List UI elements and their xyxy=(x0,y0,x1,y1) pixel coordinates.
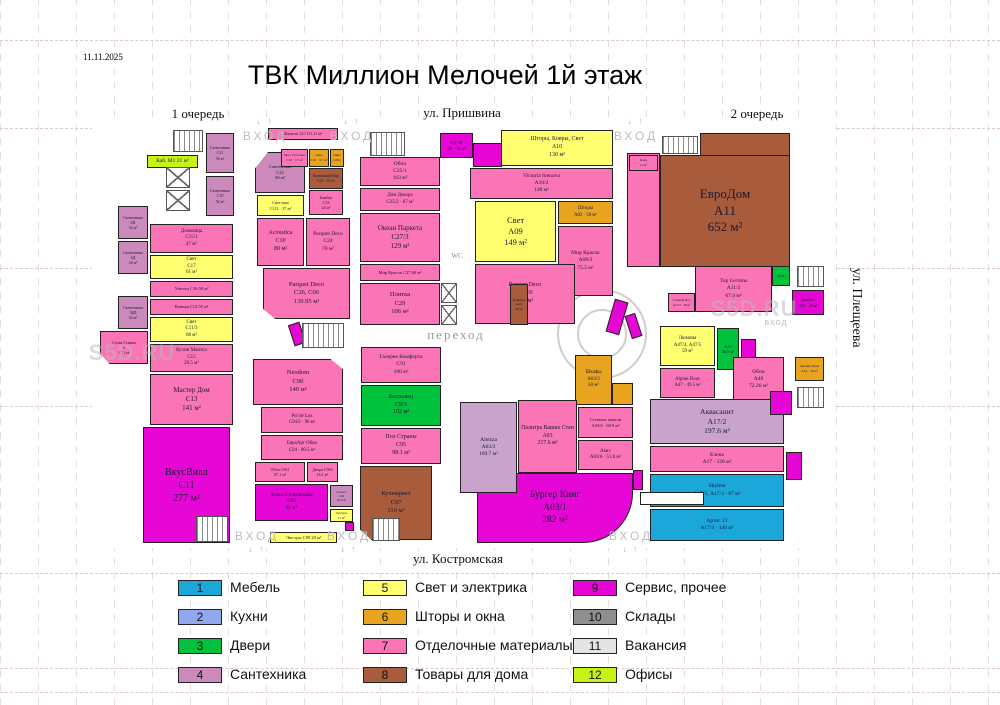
shop-block: Шторы, Ковры, СветА10130 м² xyxy=(501,130,613,166)
street: 1 очередь xyxy=(172,106,225,122)
stairs-icon xyxy=(370,132,405,156)
shop-block: ВолховецС9/3102 м² xyxy=(361,385,441,426)
shop-block: Алиса СтолешницыС9381 м² xyxy=(255,484,328,521)
shop-block xyxy=(633,470,643,490)
entrance: ВХОД xyxy=(614,129,658,143)
shop-block: Parquet DecoС26, С06139.95 м² xyxy=(263,268,350,319)
shop-block: ПлиткаС29106 м² xyxy=(360,283,440,325)
shop-label: С25/1 xyxy=(361,168,439,175)
shop-label: Мастер Дом xyxy=(151,386,232,395)
elevator-icon xyxy=(441,305,457,325)
shop-label: 72.26 м² xyxy=(734,383,783,390)
legend-swatch: 7 xyxy=(363,638,407,654)
shop-label: Skyline xyxy=(651,483,783,490)
shop-label: С11 xyxy=(144,479,229,492)
shop-block: ОкнаС1б · 8.5 м² xyxy=(309,149,329,167)
grid-line xyxy=(0,573,1000,574)
shop-label: 61 м² xyxy=(151,270,232,277)
shop-label: 15 м² xyxy=(331,516,352,520)
street: ул. Костромская xyxy=(413,551,503,567)
shop-label: Артис 21 xyxy=(651,518,783,525)
street: ул. Пришвина xyxy=(423,105,501,121)
shop-block: NeodomС9б140 м² xyxy=(253,359,343,405)
shop-block: Пол СтраныС9598.1 м² xyxy=(361,428,441,464)
shop-label: Плитка xyxy=(361,291,439,299)
shop-label: С95 xyxy=(362,442,440,450)
shop-label: Victoria Stenova xyxy=(471,173,612,180)
shop-label: Свет xyxy=(476,215,555,226)
shop-label: С91 xyxy=(362,361,440,368)
shop-label: Шторы, Ковры, Свет xyxy=(502,136,612,144)
shop-block: СветА09149 м² xyxy=(475,201,556,262)
shop-block: Alpine FloorА47 · 49.5 м² xyxy=(660,368,715,398)
shop-label: 59 м² xyxy=(661,349,714,356)
shop-label: А17/4 · 140 м² xyxy=(651,525,783,532)
shop-label: Neodom xyxy=(254,369,342,377)
stairs-icon xyxy=(302,323,344,348)
shop-block: Сантехника6Д34 м² xyxy=(118,241,148,274)
shop-label: А17/2 xyxy=(651,417,783,427)
legend-swatch: 2 xyxy=(178,609,222,625)
shop-label: А10/2 xyxy=(471,180,612,187)
arrows: ↓ ↑ xyxy=(256,116,273,126)
shop-label: С97 xyxy=(361,499,431,507)
shop-block: СантехникаС1956 м² xyxy=(206,176,234,216)
entrance: ВХОД xyxy=(609,529,653,543)
shop-label: 16.1 м² xyxy=(308,472,337,477)
shop-label: 26 м² xyxy=(511,307,527,312)
shop-label: А02 · 50 м² xyxy=(559,213,612,219)
shop-label: А03/6 · 51.6 м² xyxy=(579,455,632,462)
shop-label: А48 xyxy=(734,376,783,383)
shop-label: 98.1 м² xyxy=(362,450,440,458)
shop-label: С29 xyxy=(361,300,439,308)
shop-block: КаминыА4026 м² xyxy=(510,284,528,325)
shop-label: Мир Красок С27 60 м² xyxy=(361,270,439,276)
shop-label: А03 xyxy=(519,433,576,441)
shop-label: Волховец xyxy=(362,394,440,402)
shop-label: 130 м² xyxy=(502,152,612,160)
shop-block xyxy=(473,143,502,167)
shop-label: 106 м² xyxy=(361,308,439,316)
legend-label: Сантехника xyxy=(230,666,306,682)
entrance: ВХОД xyxy=(327,529,371,543)
legend-label: Сервис, прочее xyxy=(625,579,726,595)
shop-label: Acoustica xyxy=(258,230,303,238)
arrows: ↓ ↑ xyxy=(340,544,357,554)
shop-block: Мос. ПотолкиС16 · 17 м² xyxy=(281,149,308,167)
shop-block: Parquet DecoС2470 м² xyxy=(306,218,350,266)
shop-label: 30.5 м² xyxy=(718,349,738,354)
shop-block: СДЭКД9 · 12 м² xyxy=(440,133,473,158)
shop-label: 102 м² xyxy=(362,409,440,417)
legend-label: Вакансия xyxy=(625,637,686,653)
shop-label: 217.6 м² xyxy=(519,440,576,448)
shop-label: 56 м² xyxy=(207,156,233,161)
shop-label: 70 м² xyxy=(307,246,349,253)
entrance: ВХОД xyxy=(243,129,287,143)
shop-block: Стенные панелиА03/4 · 60.9 м² xyxy=(578,407,633,438)
shop-block: ОкнаС2б1 xyxy=(330,149,344,167)
shop-label: Обои xyxy=(734,369,783,376)
street: 2 очередь xyxy=(731,106,784,122)
shop-label: С1б · 8.5 м² xyxy=(310,158,328,163)
watermark: S5D.RU xyxy=(89,340,176,366)
shop-label: А03/1 xyxy=(478,502,632,514)
shop-label: ВкусВилл xyxy=(144,466,229,479)
shop-block xyxy=(786,452,802,480)
shop-label: 148 м² xyxy=(471,187,612,194)
shop-label: 47 м² xyxy=(151,242,232,249)
shop-label: 24 м² xyxy=(310,205,342,210)
stairs-icon xyxy=(196,516,228,542)
shop-block: СветС11/368 м² xyxy=(150,317,233,342)
shop-block: Стенной ПолА13/3 · 28 м² xyxy=(668,293,695,312)
shop-label: С94 · 80.5 м² xyxy=(262,448,342,454)
shop-label: 56 м² xyxy=(207,199,233,204)
shop-label: С13 xyxy=(151,395,232,404)
shop-label: Галерея Комфорта xyxy=(362,354,440,361)
elevator-icon xyxy=(441,283,457,303)
shop-label: 277 м² xyxy=(144,492,229,505)
shop-block xyxy=(700,133,790,156)
shop-label: 100 м² xyxy=(362,369,440,376)
shop-label: А17 · 126 м² xyxy=(651,459,783,466)
shop-block: ЕленаА17 · 126 м² xyxy=(650,446,784,472)
elevator-icon xyxy=(166,167,190,188)
shop-label: С10 xyxy=(258,238,303,246)
grid-line xyxy=(0,692,1000,693)
legend-swatch: 3 xyxy=(178,638,222,654)
shop-block: Галерея КомфортаС91100 м² xyxy=(361,347,441,383)
shop-block: Мир Красок С27 60 м² xyxy=(360,264,440,281)
shop-block: AcousticaС1080 м² xyxy=(257,218,304,266)
shop-block: Victoria StenovaА10/2148 м² xyxy=(470,168,613,199)
arrows: ↓ ↑ xyxy=(627,116,644,126)
shop-block: Сантехника3БД34 м² xyxy=(118,296,148,329)
shop-label: Д9 · 12 м² xyxy=(441,146,472,152)
shop-label: А09 xyxy=(476,226,555,237)
shop-label: С9б xyxy=(254,378,342,386)
shop-block: СантехникаС2156 м² xyxy=(206,133,234,173)
shop-block: ЛюминаА47/4, А47/559 м² xyxy=(660,326,715,366)
shop-label: С9/3 xyxy=(362,402,440,410)
shop-label: С27/3 xyxy=(361,233,439,242)
shop-label: С26, С06 xyxy=(264,289,349,297)
shop-block: Дизайн ОкнаА14 · 29 м² xyxy=(795,357,824,381)
shop-label: А12 · 28 м² xyxy=(793,303,823,308)
stairs-icon xyxy=(797,387,824,408)
shop-label: Parquet Deco xyxy=(264,281,349,289)
shop-block: СветланаС121 · 37 м² xyxy=(257,195,304,216)
shop-label: А11/3 xyxy=(696,285,771,292)
shop-label: 50 м² xyxy=(576,383,611,390)
legend-swatch: 6 xyxy=(363,609,407,625)
shop-label: С2б1 xyxy=(331,158,343,163)
shop-label: А14 · 29 м² xyxy=(796,369,823,374)
shop-label: А03/2 xyxy=(461,444,516,451)
shop-block: Люстры15 м² xyxy=(330,509,353,522)
shop-label: 87.1 м² xyxy=(256,472,304,477)
legend-swatch: 1 xyxy=(178,580,222,596)
shop-label: Кухмаркет xyxy=(361,490,431,498)
shop-block: Дом ДекораС25/2 · 67 м² xyxy=(360,188,440,211)
shop-block: Океан ПаркетаС27/3129 м² xyxy=(360,213,440,262)
stairs-icon xyxy=(662,136,698,154)
elevator-icon xyxy=(166,190,190,211)
legend-label: Мебель xyxy=(230,579,280,595)
legend-label: Свет и электрика xyxy=(415,579,527,595)
street-v: ул. Плещеева xyxy=(848,268,864,348)
stairs-icon xyxy=(372,518,400,541)
shop-label: А11 xyxy=(661,203,789,220)
shop-label: 34 м² xyxy=(119,260,147,265)
shop-label: Пол Страны xyxy=(362,434,440,442)
date: 11.11.2025 xyxy=(83,52,123,62)
shop-block: Палитра Ваших СтенА03217.6 м² xyxy=(518,400,577,473)
shop-label: 652 м² xyxy=(661,219,789,236)
shop-label: С24 xyxy=(307,238,349,245)
legend-swatch: 5 xyxy=(363,580,407,596)
shop-label: А10 xyxy=(502,144,612,152)
shop-block xyxy=(640,492,704,505)
shop-block: Сантех.С9225.6 м² xyxy=(330,485,353,507)
shop-label: 139.95 м² xyxy=(264,298,349,306)
shop-block: ЕвроАрт ОбоиС94 · 80.5 м² xyxy=(261,435,343,460)
grid-line xyxy=(0,40,1000,41)
shop-label: Ванная С14 55 м² xyxy=(151,304,232,310)
legend-label: Товары для дома xyxy=(415,666,528,682)
shop-label: 140 м² xyxy=(254,386,342,394)
page-title: ТВК Миллион Мелочей 1й этаж xyxy=(0,60,890,91)
shop-label: 110 м² xyxy=(361,507,431,515)
shop-label: С23 · 18 м² xyxy=(310,179,342,184)
shop-label: 141 м² xyxy=(151,404,232,413)
shop-block: ДомовицаС15/147 м² xyxy=(150,224,233,253)
arrows: ↓ ↑ xyxy=(248,544,265,554)
shop-block: Артис 21А17/4 · 140 м² xyxy=(650,509,784,541)
shop-block: Сантехника6П34 м² xyxy=(118,206,148,239)
shop-label: С121 · 37 м² xyxy=(258,206,303,211)
shop-block: ЕвроДомА11652 м² xyxy=(660,155,790,267)
shop-label: 68 м² xyxy=(151,333,232,340)
shop-label: Мир Красок xyxy=(559,250,612,257)
entrance: ВХОД xyxy=(330,129,374,143)
shop-label: 14 м² xyxy=(630,163,657,168)
shop-label: 169.7 м² xyxy=(461,451,516,458)
shop-label: Умелец С16 50 м² xyxy=(151,286,232,292)
shop-label: А47 · 49.5 м² xyxy=(661,383,714,389)
shop-label: Altezza xyxy=(461,437,516,444)
shop-label: 15 м² xyxy=(773,274,789,279)
shop-block: AlarcА03/6 · 51.6 м² xyxy=(578,440,633,470)
legend-swatch: 10 xyxy=(573,609,617,625)
shop-block: Pol de LuxС94/2 · 96 м² xyxy=(261,407,343,433)
legend-swatch: 12 xyxy=(573,667,617,683)
stairs-icon xyxy=(173,130,203,152)
floorplan-page: ТВК Миллион Мелочей 1й этаж 11.11.2025 С… xyxy=(0,0,1000,705)
shop-label: Каб. М1 21 м² xyxy=(148,158,197,165)
shop-block: Двери С9б316.1 м² xyxy=(307,462,338,482)
legend-label: Отделочные материалы xyxy=(415,637,573,653)
shop-label: Елена xyxy=(651,452,783,459)
shop-block xyxy=(612,383,633,405)
legend-label: Двери xyxy=(230,637,270,653)
legend-swatch: 4 xyxy=(178,667,222,683)
legend-label: Офисы xyxy=(625,666,672,682)
shop-label: 81 м² xyxy=(256,506,327,513)
shop-block: ОбоиС25/1103 м² xyxy=(360,157,440,186)
shop-label: 149 м² xyxy=(476,237,555,248)
shop-label: 34 м² xyxy=(119,315,147,320)
shop-block: Каминный МирС23 · 18 м² xyxy=(309,168,343,189)
wc: WC xyxy=(451,252,462,260)
shop-label: Аквасанит xyxy=(651,407,783,417)
shop-block: Ванная С14 55 м² xyxy=(150,299,233,315)
shop-label: 68 м² xyxy=(256,175,304,181)
legend-label: Кухни xyxy=(230,608,268,624)
stairs-icon xyxy=(797,266,824,287)
shop-label: 129 м² xyxy=(361,242,439,251)
shop-label: 34 м² xyxy=(119,225,147,230)
shop-block: ШторыА02 · 50 м² xyxy=(558,201,613,224)
shop-label: 103 м² xyxy=(361,175,439,182)
arrows: ↓ ↑ xyxy=(622,544,639,554)
shop-block: 15 м² xyxy=(772,266,790,286)
legend-swatch: 9 xyxy=(573,580,617,596)
shop-block: AltezzaА03/2169.7 м² xyxy=(460,402,517,493)
shop-block: Умелец С16 50 м² xyxy=(150,281,233,297)
shop-label: 80 м² xyxy=(258,246,303,254)
shop-label: ЕвроДом xyxy=(661,186,789,203)
shop-label: С94/2 · 96 м² xyxy=(262,420,342,426)
shop-block: ШкафыА03/350 м² xyxy=(575,355,612,405)
corridor: переход xyxy=(427,327,485,343)
shop-label: Палитра Ваших Стен xyxy=(519,425,576,433)
shop-label: Parquet Deco xyxy=(307,231,349,238)
shop-block: Мастер ДомС13141 м² xyxy=(150,374,233,425)
shop-block: АквасанитА17/2197.6 м² xyxy=(650,399,784,444)
arrows: ↓ ↑ xyxy=(343,116,360,126)
shop-block: Кофе14 м² xyxy=(629,155,658,171)
shop-label: С25/2 · 67 м² xyxy=(361,200,439,207)
legend-label: Склады xyxy=(625,608,676,624)
legend-label: Шторы и окна xyxy=(415,608,505,624)
shop-label: Обои xyxy=(361,161,439,168)
shop-label: 197.6 м² xyxy=(651,426,783,436)
shop-label: 25.6 м² xyxy=(331,498,352,502)
shop-block xyxy=(770,391,792,415)
shop-label: Тор Сетапы xyxy=(696,278,771,285)
legend-swatch: 8 xyxy=(363,667,407,683)
shop-block: СветС1761 м² xyxy=(150,255,233,279)
shop-label: С16 · 17 м² xyxy=(282,158,307,163)
shop-label: А03/4 · 60.9 м² xyxy=(579,423,632,429)
shop-block: БамбукС3324 м² xyxy=(309,190,343,215)
entrance: ВХОД xyxy=(235,529,279,543)
legend-swatch: 11 xyxy=(573,638,617,654)
shop-block: Обои С9б187.1 м² xyxy=(255,462,305,482)
shop-label: Океан Паркета xyxy=(361,224,439,233)
watermark: S5D.RU xyxy=(711,296,798,322)
shop-label: 282 м² xyxy=(478,514,632,526)
shop-label: А13/3 · 28 м² xyxy=(669,303,694,307)
